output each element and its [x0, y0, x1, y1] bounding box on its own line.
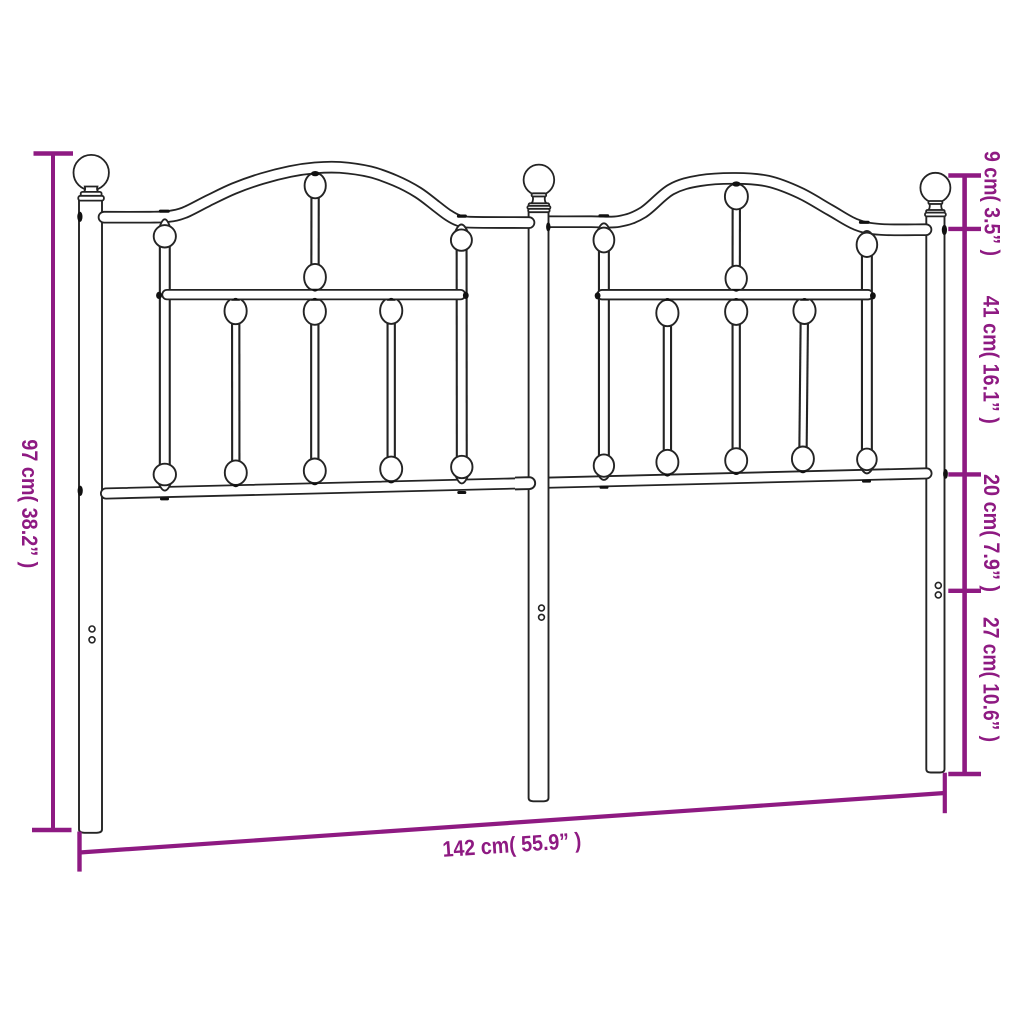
svg-text:9 cm( 3.5” ): 9 cm( 3.5” )	[979, 151, 1004, 256]
svg-text:20 cm( 7.9” ): 20 cm( 7.9” )	[979, 474, 1004, 592]
svg-text:41 cm( 16.1” ): 41 cm( 16.1” )	[979, 296, 1004, 424]
svg-text:27 cm( 10.6” ): 27 cm( 10.6” )	[978, 617, 1003, 742]
svg-text:97 cm( 38.2” ): 97 cm( 38.2” )	[17, 439, 42, 568]
svg-text:142 cm( 55.9” ): 142 cm( 55.9” )	[442, 828, 582, 862]
